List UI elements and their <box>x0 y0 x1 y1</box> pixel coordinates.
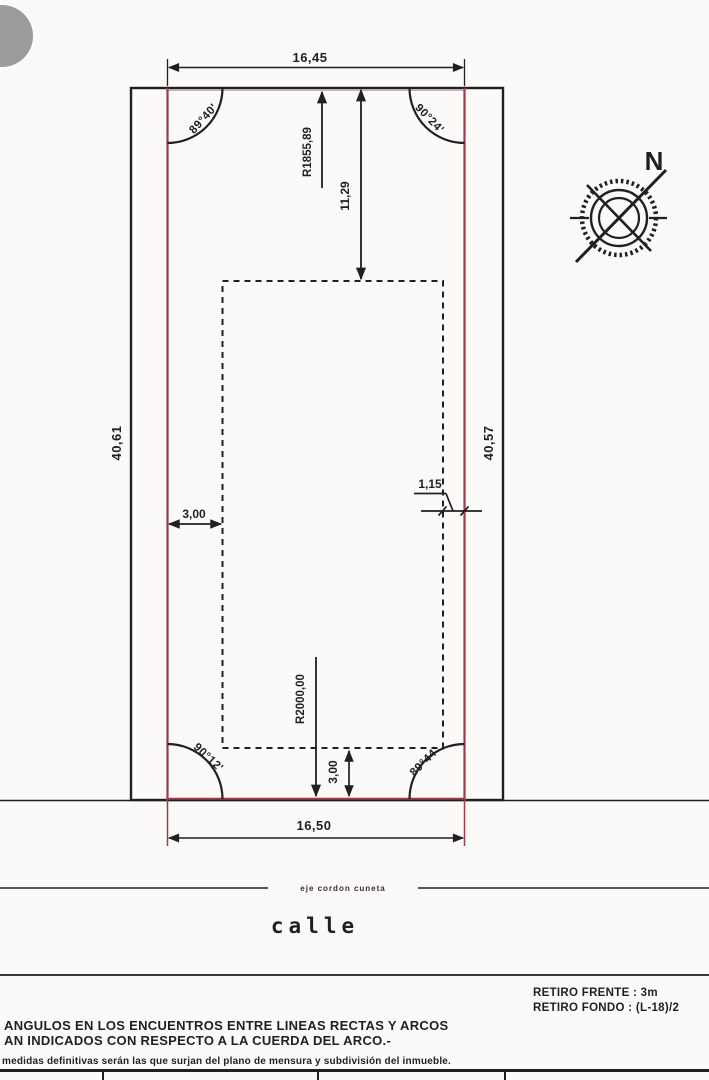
dim-front-top: 16,45 <box>168 50 465 86</box>
north-label: N <box>645 146 664 176</box>
angle-top-left: 89°40' <box>187 102 220 137</box>
dim-depth-to-setback: 11,29 <box>338 90 361 279</box>
survey-plan-svg: 89°40' 90°24' 90°12' 89°44' 16,45 16,50 … <box>0 0 709 1080</box>
survey-plan-page: 89°40' 90°24' 90°12' 89°44' 16,45 16,50 … <box>0 0 709 1080</box>
dim-front-bottom-value: 16,50 <box>296 818 331 833</box>
dim-depth-to-setback-value: 11,29 <box>338 181 352 211</box>
note-measures: medidas definitivas serán las que surjan… <box>2 1056 451 1067</box>
dim-setback-left: 3,00 <box>169 507 221 524</box>
dim-radius-rear: R2000,00 <box>295 657 316 796</box>
dim-side-right-value: 40,57 <box>481 425 496 460</box>
bottom-table-border <box>0 1071 709 1080</box>
setback-dashed-rect <box>223 281 444 748</box>
curb-axis-label: eje cordon cuneta <box>300 884 385 893</box>
dim-front-top-value: 16,45 <box>292 50 327 65</box>
dim-setback-rear: 3,00 <box>326 751 349 796</box>
dim-front-bottom: 16,50 <box>169 818 463 838</box>
note-retiro-fondo: RETIRO FONDO : (L-18)/2 <box>533 1002 679 1014</box>
note-retiro-frente: RETIRO FRENTE : 3m <box>533 987 658 999</box>
street-label: calle <box>271 914 359 938</box>
angle-bottom-left: 90°12' <box>191 741 225 774</box>
dim-side-left-value: 40,61 <box>109 425 124 460</box>
note-angles-line1: ANGULOS EN LOS ENCUENTROS ENTRE LINEAS R… <box>4 1018 448 1033</box>
dim-radius-rear-value: R2000,00 <box>295 674 307 724</box>
angle-bottom-right: 89°44' <box>408 745 442 779</box>
scan-artifact-blob <box>0 5 33 67</box>
dim-setback-left-value: 3,00 <box>182 507 206 521</box>
north-compass-icon <box>570 170 667 262</box>
dim-radius-front-value: R1855,89 <box>302 127 314 177</box>
dim-radius-front: R1855,89 <box>302 92 322 188</box>
dim-setback-right: 1,15 <box>414 477 482 516</box>
outer-block-boundary <box>131 88 503 800</box>
dim-setback-right-value: 1,15 <box>418 477 442 491</box>
note-angles-line2: AN INDICADOS CON RESPECTO A LA CUERDA DE… <box>4 1033 391 1048</box>
dim-setback-rear-value: 3,00 <box>326 760 340 784</box>
